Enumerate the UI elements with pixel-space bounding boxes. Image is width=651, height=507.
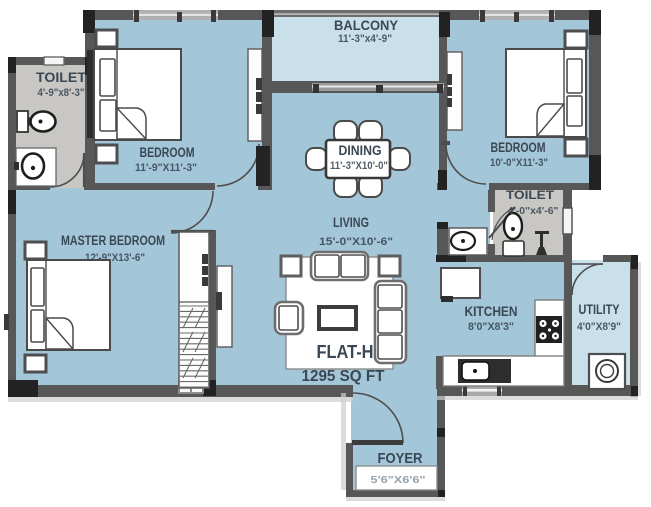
svg-text:BEDROOM: BEDROOM <box>140 145 195 160</box>
svg-text:8'0"X8'3": 8'0"X8'3" <box>468 321 514 333</box>
svg-text:BALCONY: BALCONY <box>334 18 398 33</box>
svg-text:MASTER BEDROOM: MASTER BEDROOM <box>61 233 165 248</box>
svg-text:11'-9"X11'-3": 11'-9"X11'-3" <box>135 162 197 174</box>
svg-text:FLAT-H: FLAT-H <box>317 342 374 362</box>
svg-text:DINING: DINING <box>339 143 382 158</box>
svg-text:15'-0"X10'-6": 15'-0"X10'-6" <box>319 236 393 248</box>
svg-text:TOILET: TOILET <box>36 70 87 85</box>
svg-text:11'-3"x4'-9": 11'-3"x4'-9" <box>338 33 392 45</box>
svg-text:4'-0"x4'-6": 4'-0"x4'-6" <box>508 205 559 217</box>
svg-text:FOYER: FOYER <box>378 450 423 467</box>
svg-text:11'-3"X10'-0": 11'-3"X10'-0" <box>330 160 388 172</box>
svg-text:TOILET: TOILET <box>506 188 555 202</box>
svg-text:10'-0"X11'-3": 10'-0"X11'-3" <box>490 157 548 169</box>
svg-text:5'6"X6'6": 5'6"X6'6" <box>371 475 426 486</box>
svg-text:LIVING: LIVING <box>333 215 369 230</box>
svg-text:12'-9"X13'-6": 12'-9"X13'-6" <box>85 252 145 264</box>
svg-text:4'-9"x8'-3": 4'-9"x8'-3" <box>38 87 85 99</box>
svg-text:4'0"X8'9": 4'0"X8'9" <box>577 321 621 333</box>
svg-text:UTILITY: UTILITY <box>579 302 620 317</box>
svg-text:1295 SQ FT: 1295 SQ FT <box>302 368 386 385</box>
svg-text:KITCHEN: KITCHEN <box>465 304 518 319</box>
svg-text:BEDROOM: BEDROOM <box>491 140 546 155</box>
